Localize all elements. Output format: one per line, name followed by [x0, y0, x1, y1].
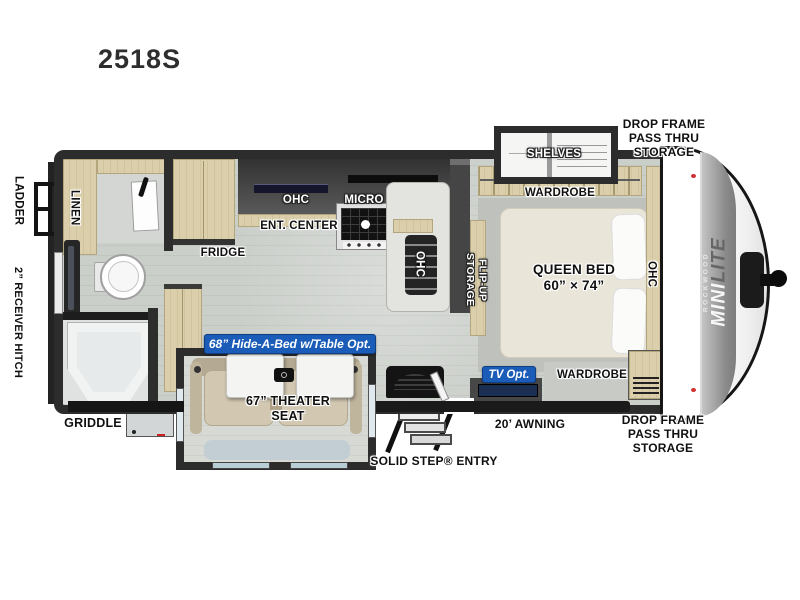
solid-step-entry-label: SOLID STEP® ENTRY	[368, 455, 500, 469]
receiver-hitch-label: 2” RECEIVER HITCH	[11, 244, 24, 400]
floorplan-canvas: 2518S LADDER 2” RECEIVER HITCH LINEN	[0, 0, 800, 600]
slideout-window	[368, 384, 376, 438]
ohc-bedroom-label: OHC	[644, 244, 657, 304]
rug	[204, 440, 350, 460]
ladder-icon	[34, 182, 56, 236]
console-screen-icon	[274, 368, 294, 382]
awning-label: 20’ AWNING	[470, 418, 590, 432]
brand-lite: LITE	[709, 237, 730, 282]
ohc-kitchen-label: OHC	[266, 194, 326, 207]
wardrobe-front-label: WARDROBE	[512, 187, 608, 200]
brand-mini: MINI	[709, 283, 730, 327]
clearance-light	[691, 388, 696, 392]
griddle-icon	[126, 410, 174, 437]
clearance-light	[691, 174, 696, 178]
awning-roll	[372, 401, 630, 412]
slideout-window	[212, 462, 270, 469]
floorplan-model-number: 2518S	[98, 44, 181, 75]
fridge-label: FRIDGE	[192, 247, 254, 260]
ladder-label: LADDER	[11, 164, 24, 238]
drop-frame-storage-front-label: DROP FRAME PASS THRU STORAGE	[606, 118, 722, 160]
griddle-rail	[68, 401, 184, 412]
brand-logo: ROCKWOOD MINILITE	[688, 182, 744, 382]
rear-wall-window	[54, 252, 63, 314]
ent-center-label: ENT. CENTER	[240, 220, 358, 233]
queen-bed-label: QUEEN BED 60” × 74”	[506, 262, 642, 293]
slideout-window	[176, 388, 184, 442]
bathroom-wall	[164, 159, 173, 251]
slideout-window	[290, 462, 348, 469]
flip-up-storage-label: FLIP-UP STORAGE	[464, 224, 488, 336]
shower-wall	[148, 308, 158, 405]
griddle-label: GRIDDLE	[58, 416, 128, 431]
tv-option-badge: TV Opt.	[482, 366, 536, 383]
tongue-jack-icon	[770, 270, 787, 287]
drop-frame-storage-rear-label: DROP FRAME PASS THRU STORAGE	[604, 414, 722, 456]
ohc-island-label: OHC	[412, 238, 425, 290]
linen-label: LINEN	[67, 170, 80, 246]
micro-label: MICRO	[332, 194, 396, 207]
theater-seat-label: 67” THEATER SEAT	[230, 394, 346, 423]
wardrobe-rear-label: WARDROBE	[546, 369, 638, 382]
shelves-label: SHELVES	[498, 148, 610, 161]
tray-table	[296, 354, 354, 398]
hide-a-bed-badge: 68” Hide-A-Bed w/Table Opt.	[204, 334, 376, 354]
